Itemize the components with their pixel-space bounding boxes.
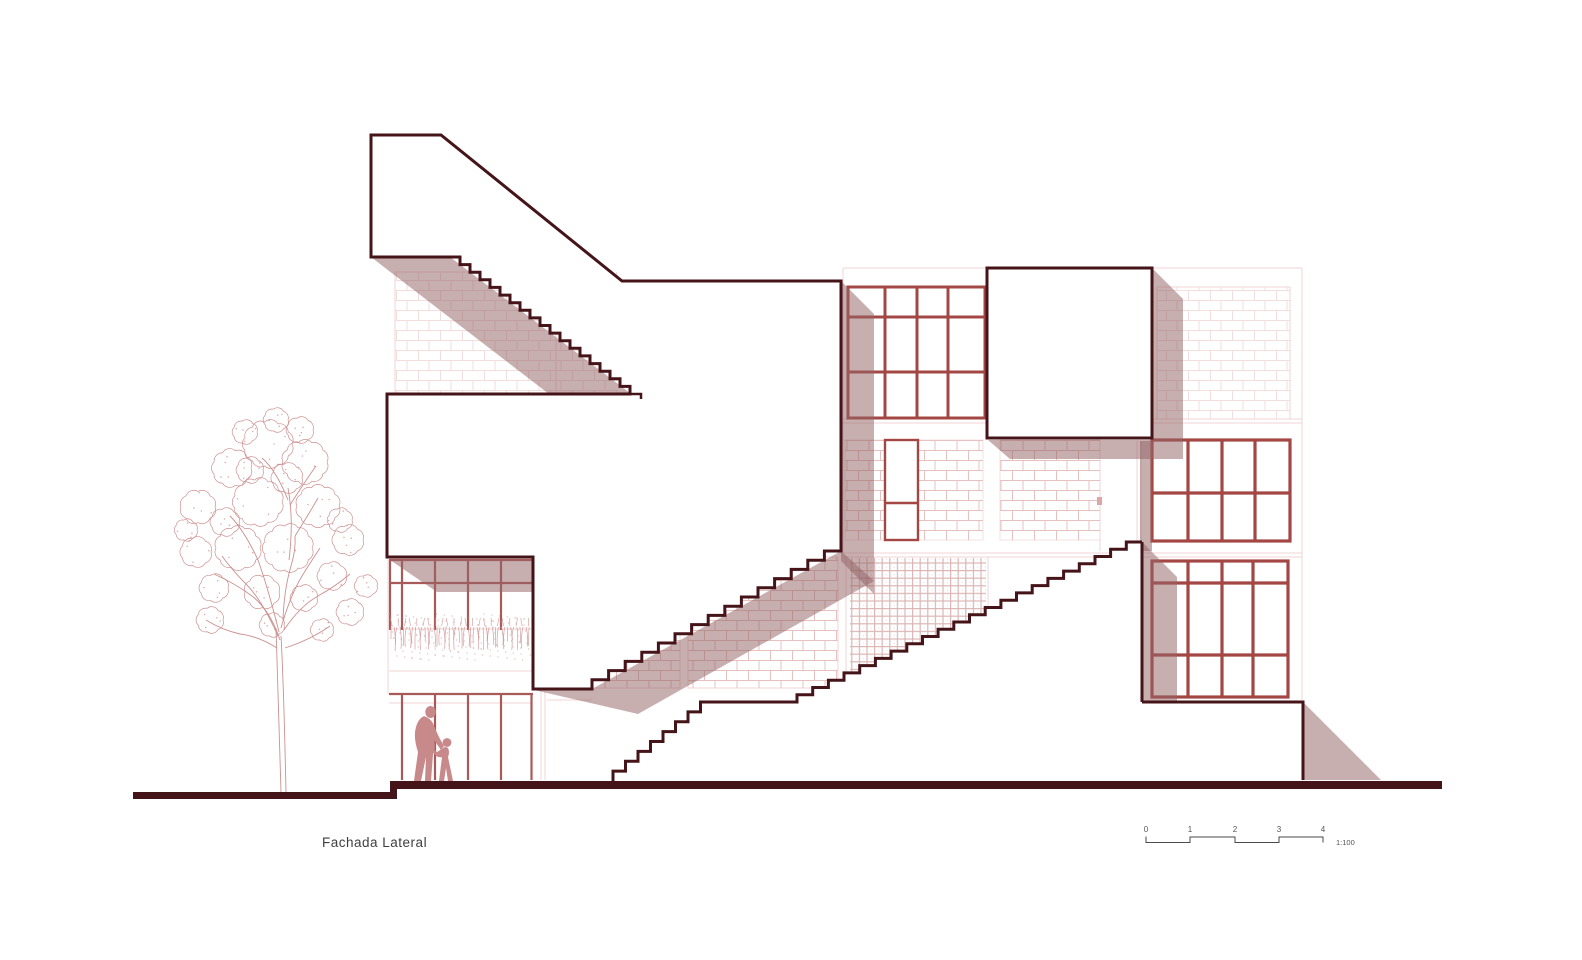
shadow-right-edge-band (841, 281, 874, 594)
tree-trunk (206, 458, 350, 792)
protruding-box-volume (987, 268, 1152, 438)
scale-mark-0: 0 (1144, 825, 1149, 834)
adult-silhouette (414, 706, 444, 781)
ground-line-left (133, 792, 397, 799)
right-podium (1142, 702, 1303, 781)
elevation-drawing-sheet: Fachada Lateral 0 1 2 3 4 1:100 (0, 0, 1582, 960)
balcony-vines (388, 613, 530, 660)
glazing-left-bay-ground (389, 694, 533, 780)
drawing-title: Fachada Lateral (322, 835, 427, 850)
scale-mark-4: 4 (1321, 825, 1326, 834)
shadow-podium (1303, 702, 1381, 780)
tree-canopy (174, 408, 377, 642)
drawing-canvas: Fachada Lateral 0 1 2 3 4 1:100 (0, 0, 1582, 960)
annotations: Fachada Lateral 0 1 2 3 4 1:100 (322, 825, 1355, 850)
tree-illustration (174, 408, 377, 792)
scale-mark-2: 2 (1233, 825, 1238, 834)
window-small-mid (885, 440, 918, 540)
shadow-left-bay-ledge (390, 560, 533, 592)
ground-line-main (390, 781, 1442, 789)
scale-ratio-label: 1:100 (1336, 838, 1355, 847)
human-figures (414, 706, 453, 781)
shadow-door-strip (1140, 441, 1152, 551)
scale-bar (1146, 837, 1323, 843)
ground-lines (133, 781, 1442, 799)
scale-mark-3: 3 (1277, 825, 1282, 834)
scale-mark-1: 1 (1188, 825, 1193, 834)
door-handle (1097, 497, 1102, 505)
ground-step-connector (390, 781, 397, 799)
